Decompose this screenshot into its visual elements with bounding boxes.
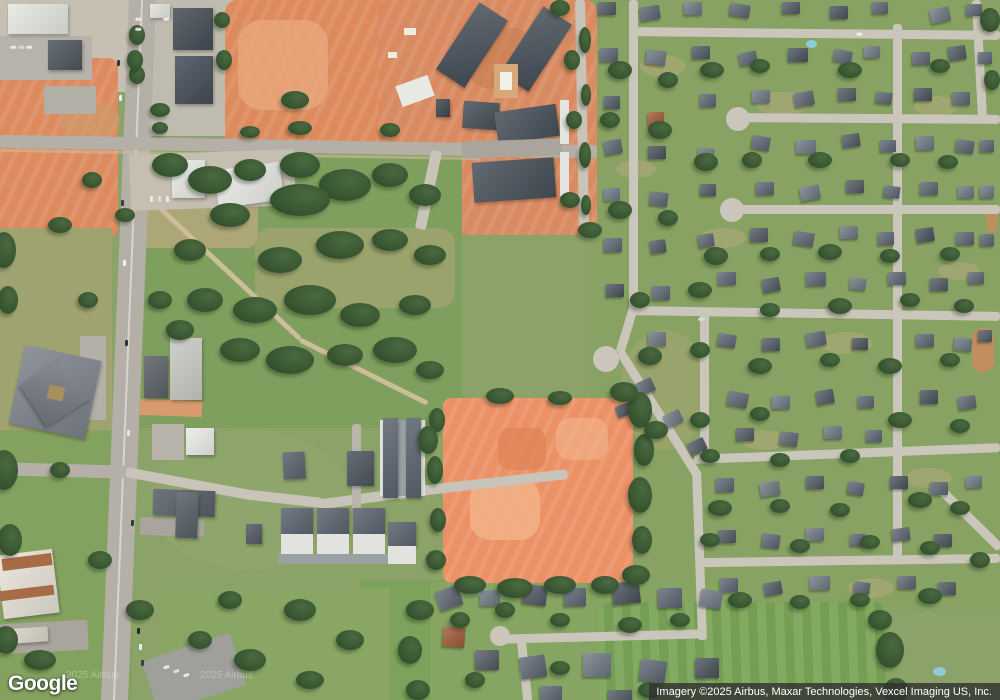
car	[135, 18, 141, 21]
car	[698, 318, 704, 321]
car-layer	[0, 0, 1000, 700]
car	[139, 644, 142, 650]
car	[150, 196, 153, 202]
car	[26, 46, 32, 49]
car	[125, 340, 128, 346]
car	[163, 665, 170, 669]
car	[163, 18, 169, 21]
car	[173, 669, 180, 673]
car	[183, 673, 190, 677]
imagery-watermark: 2025 Airbus	[200, 670, 253, 681]
car	[117, 60, 120, 66]
car	[10, 46, 16, 49]
attribution-text: Imagery ©2025 Airbus, Maxar Technologies…	[656, 686, 992, 698]
car	[127, 430, 130, 436]
attribution-bar: Imagery ©2025 Airbus, Maxar Technologies…	[649, 683, 1000, 700]
car	[856, 33, 862, 36]
car	[123, 260, 126, 266]
car	[135, 28, 141, 31]
google-logo[interactable]: Google	[8, 672, 77, 696]
car	[137, 628, 140, 634]
satellite-map-canvas[interactable]: 2025 Airbus 2025 Airbus Google Imagery ©…	[0, 0, 1000, 700]
car	[131, 520, 134, 526]
car	[166, 196, 169, 202]
car	[121, 200, 124, 206]
car	[18, 46, 24, 49]
car	[158, 196, 161, 202]
car	[141, 660, 144, 666]
car	[119, 95, 122, 101]
